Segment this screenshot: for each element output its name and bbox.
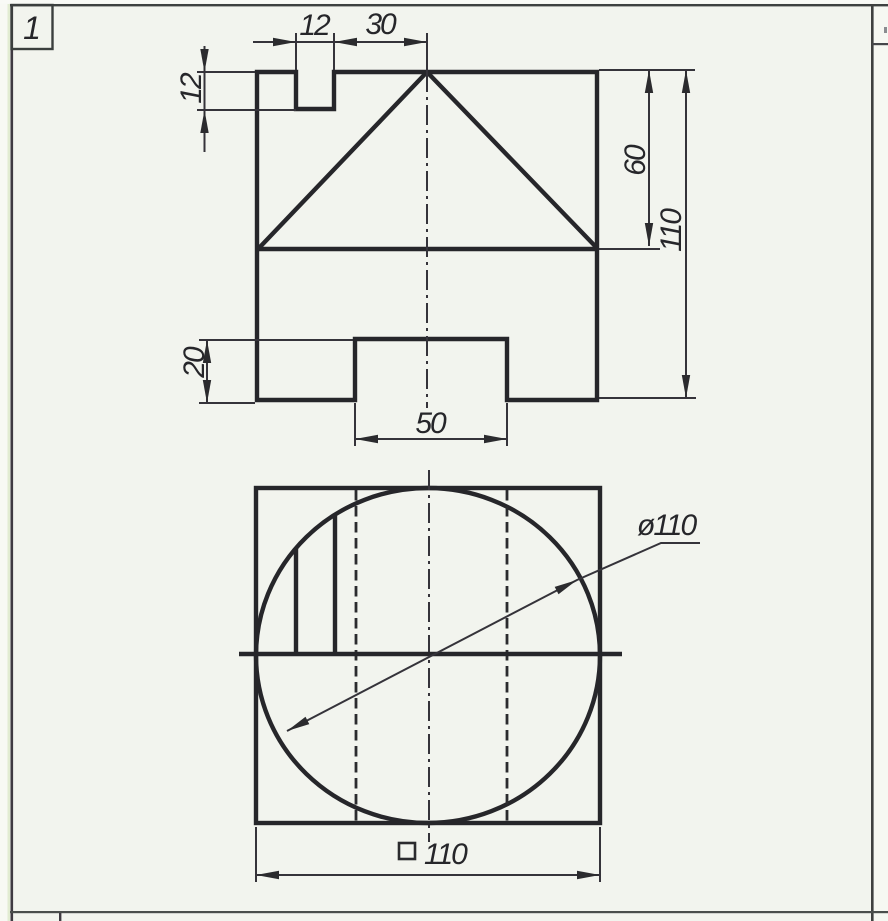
svg-text:110: 110	[655, 208, 688, 252]
svg-text:12: 12	[299, 9, 331, 42]
svg-text:110: 110	[424, 838, 468, 871]
svg-text:1: 1	[23, 10, 39, 46]
svg-text:ø110: ø110	[637, 509, 697, 542]
svg-text:60: 60	[619, 144, 652, 176]
svg-text:12: 12	[175, 72, 208, 104]
svg-text:50: 50	[415, 407, 447, 440]
svg-text:20: 20	[178, 346, 211, 379]
svg-text:30: 30	[365, 8, 397, 41]
